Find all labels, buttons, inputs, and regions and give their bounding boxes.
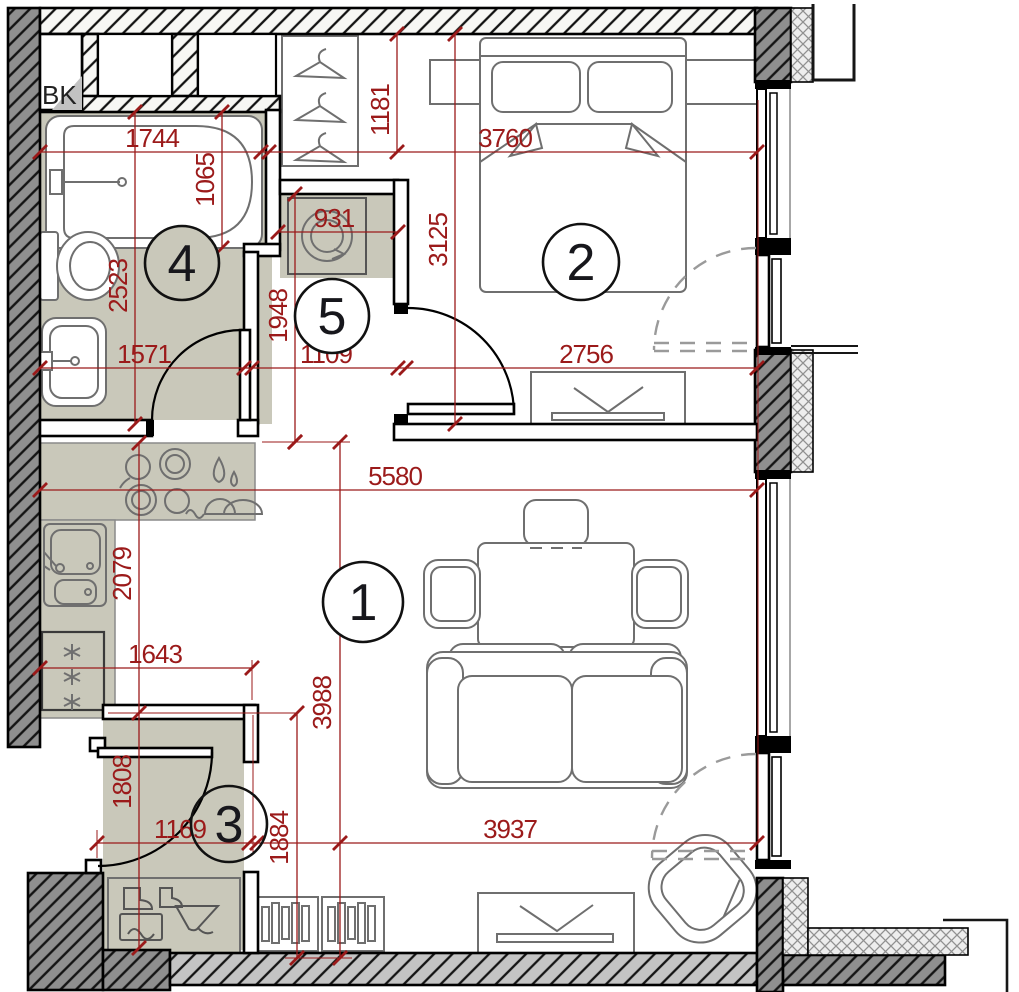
wall-bottom-dark <box>103 950 170 990</box>
svg-text:931: 931 <box>314 203 355 233</box>
svg-text:5: 5 <box>318 288 347 346</box>
room-circle-hallway: 5 <box>295 279 369 353</box>
floor-plan-drawing: 1744 3760 931 1571 1109 2756 5580 1 <box>0 0 1019 992</box>
living-tv-cabinet <box>478 893 634 955</box>
balcony-outline <box>791 4 1007 992</box>
bathroom-sink <box>40 318 106 406</box>
nightstand-right <box>686 60 757 104</box>
living-window <box>755 470 791 745</box>
room-circle-living: 1 <box>323 562 403 642</box>
pillow <box>492 62 580 112</box>
svg-text:1169: 1169 <box>154 814 206 844</box>
svg-text:1181: 1181 <box>365 84 395 136</box>
door-jamb <box>146 420 154 436</box>
insulation-mid <box>791 350 813 472</box>
chair-right <box>632 560 688 628</box>
svg-text:1571: 1571 <box>117 339 171 369</box>
svg-text:3125: 3125 <box>423 213 453 267</box>
svg-text:2079: 2079 <box>107 547 137 601</box>
insulation-br-h <box>808 928 968 955</box>
bedroom-door <box>408 308 514 414</box>
pillow <box>588 62 672 112</box>
svg-text:2: 2 <box>567 234 596 292</box>
svg-text:1808: 1808 <box>107 755 137 809</box>
door-jamb <box>394 414 408 424</box>
svg-text:1: 1 <box>349 574 378 632</box>
partition-entry-right-upper <box>244 705 258 762</box>
insulation-top <box>791 8 813 82</box>
bedroom-window <box>755 80 791 247</box>
wall-corner-br-h <box>783 955 945 985</box>
shaft-label: BK <box>42 80 77 110</box>
svg-text:2756: 2756 <box>559 339 613 369</box>
pier-top <box>755 8 791 82</box>
room-circle-bathroom: 4 <box>145 226 219 300</box>
chair-top <box>524 500 588 546</box>
dim-label: 1744 <box>125 123 179 153</box>
svg-text:1065: 1065 <box>190 153 220 207</box>
svg-text:3988: 3988 <box>307 676 337 730</box>
wall-bottom <box>170 953 757 985</box>
wall-left <box>8 8 40 747</box>
partition-bedroom-left <box>394 180 408 304</box>
svg-text:4: 4 <box>168 235 197 293</box>
hanger-wardrobe <box>282 36 358 166</box>
wall-top <box>40 8 757 34</box>
shoe-racks <box>256 897 384 951</box>
svg-text:5580: 5580 <box>368 461 422 491</box>
sofa <box>427 644 687 788</box>
svg-text:1643: 1643 <box>128 639 182 669</box>
insulation-br-v <box>783 878 808 955</box>
room-circle-bedroom: 2 <box>543 224 619 300</box>
dim-living-height: 3988 <box>307 435 347 965</box>
niche-1 <box>98 34 172 96</box>
armchair <box>636 822 770 956</box>
svg-text:1948: 1948 <box>263 289 293 343</box>
svg-text:3937: 3937 <box>483 814 537 844</box>
niche-2 <box>198 34 276 96</box>
pier-mid <box>755 350 791 472</box>
svg-text:2523: 2523 <box>103 259 133 313</box>
wall-corner-br-v <box>757 878 783 992</box>
dim-label: 3760 <box>478 123 532 153</box>
wall-corner-bl <box>28 873 103 990</box>
partition-bedroom-bottom <box>394 424 757 440</box>
dim-wardrobe-depth: 1181 <box>365 27 404 159</box>
entry-wardrobe <box>108 878 240 954</box>
partition-bath-right-upper <box>266 110 280 250</box>
partition-bath-door-post <box>238 420 258 436</box>
dining-table <box>478 543 634 647</box>
svg-text:3: 3 <box>215 796 244 854</box>
door-jamb <box>394 304 408 314</box>
dining-set <box>424 500 688 647</box>
kitchen-counter-top <box>40 443 255 520</box>
chair-left <box>424 560 480 628</box>
partition-entry-right-lower <box>244 872 258 953</box>
partition-entry-top <box>103 705 255 719</box>
svg-text:1884: 1884 <box>264 811 294 865</box>
fridge <box>42 632 104 710</box>
floor-plan-page: 1744 3760 931 1571 1109 2756 5580 1 <box>0 0 1019 992</box>
